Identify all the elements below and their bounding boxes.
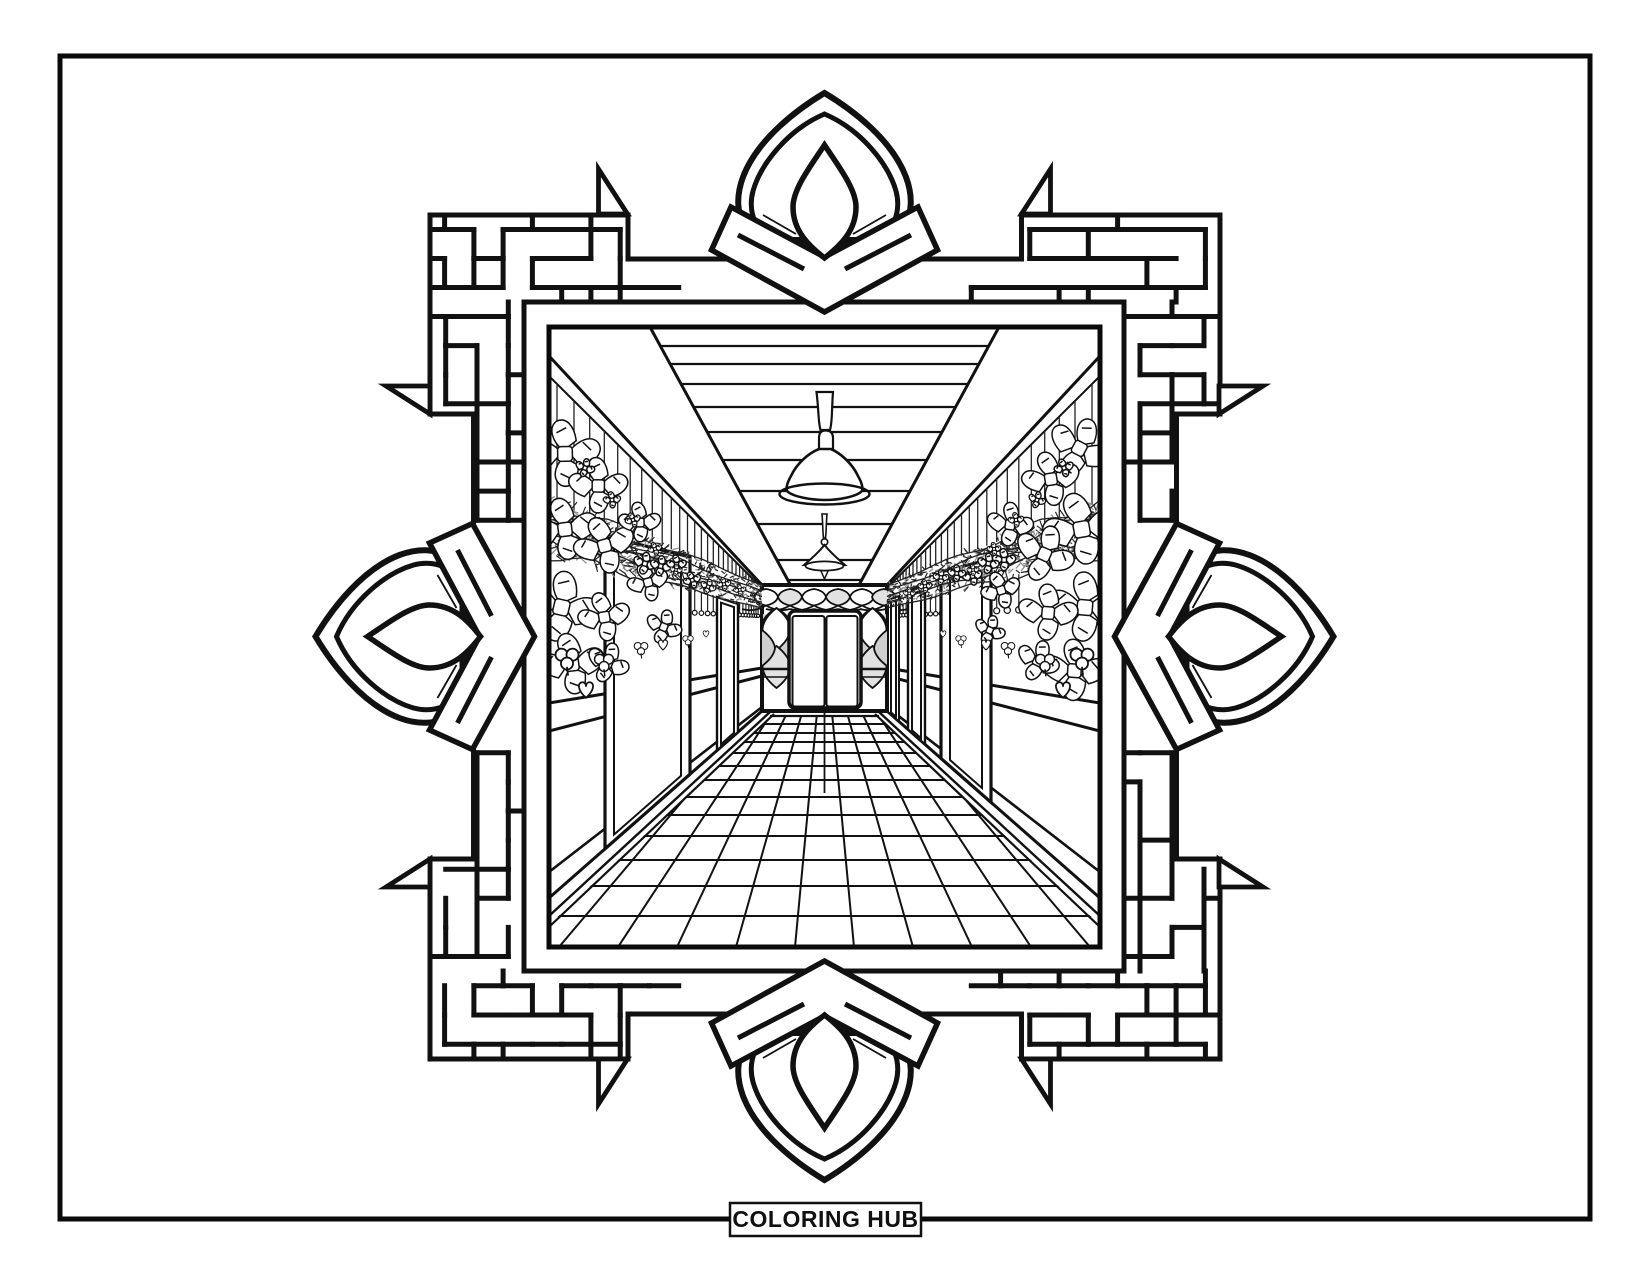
svg-text:COLORING HUB: COLORING HUB (732, 1206, 918, 1232)
